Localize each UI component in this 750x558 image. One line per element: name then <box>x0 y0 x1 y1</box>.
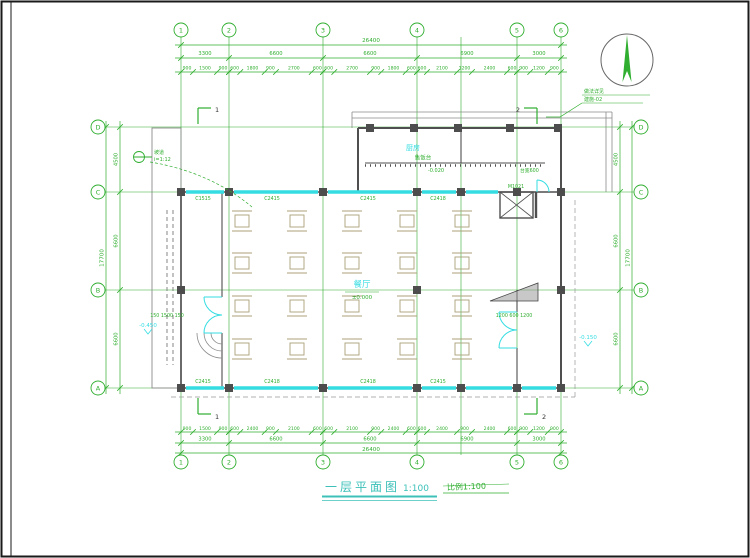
dimension-text: 2700 <box>288 66 300 72</box>
dimension-text: 900 <box>219 66 228 72</box>
room-label-dining: 餐厅 <box>353 280 371 290</box>
elevation-text: -0.450 <box>139 323 157 329</box>
dimension-text: 900 <box>371 66 380 72</box>
dimension-text: 2100 <box>436 66 448 72</box>
grid-bubble-label: 5 <box>515 26 519 34</box>
window-tag: C2415 <box>195 379 211 385</box>
room-label-kitchen: 厨房 <box>406 143 420 152</box>
section-number: 1 <box>215 413 219 421</box>
dimension-text: 17700 <box>100 249 106 267</box>
dimension-text: 6600 <box>614 234 620 247</box>
dimension-text: 6600 <box>269 437 282 443</box>
dimension-text: 4500 <box>114 153 120 166</box>
dimension-text: 1200 <box>459 66 471 72</box>
dimension-text: 1200 <box>533 426 545 432</box>
dimension-text: 600 <box>508 426 517 432</box>
grid-bubble-label: 1 <box>179 26 183 34</box>
dimension-text: 900 <box>219 426 228 432</box>
column <box>557 188 565 196</box>
grid-bubble-label: B <box>639 286 643 294</box>
dimension-text: 2400 <box>388 426 400 432</box>
window-tag: C2415 <box>264 196 280 202</box>
note-text: 建施-02 <box>584 96 602 103</box>
grid-bubble-label: 4 <box>415 26 419 34</box>
callout-text: 坡道 <box>154 149 164 156</box>
column <box>225 384 233 392</box>
column <box>177 286 185 294</box>
dimension-text: 6600 <box>363 437 376 443</box>
column <box>413 384 421 392</box>
dimension-text: 900 <box>183 426 192 432</box>
dimension-text: 900 <box>550 66 559 72</box>
column <box>413 188 421 196</box>
grid-bubble-label: 2 <box>227 26 231 34</box>
grid-bubble-label: 3 <box>321 458 325 466</box>
dimension-text: 600 <box>324 66 333 72</box>
dimension-text: 2400 <box>436 426 448 432</box>
dimension-text: 2100 <box>346 426 358 432</box>
dimension-text: 17700 <box>626 249 632 267</box>
dimension-text: 3300 <box>198 51 211 57</box>
elevation-dining: ±0.000 <box>352 295 373 301</box>
window-tag: C2418 <box>264 379 280 385</box>
dimension-text: 3000 <box>532 51 545 57</box>
column <box>177 188 185 196</box>
dimension-text: 6900 <box>460 437 473 443</box>
dimension-text: 2100 <box>288 426 300 432</box>
dimension-text: 600 <box>407 66 416 72</box>
dimension-text: 2400 <box>484 66 496 72</box>
door-tag: M1021 <box>508 184 524 190</box>
dimension-text: 4500 <box>614 153 620 166</box>
grid-bubble-label: C <box>639 188 644 196</box>
dimension-text: 900 <box>266 66 275 72</box>
grid-bubble-label: A <box>96 384 101 392</box>
dimension-text: 3300 <box>198 437 211 443</box>
counter-note: 台宽600 <box>520 167 539 174</box>
dimension-text: 1800 <box>388 66 400 72</box>
dimension-text: 26400 <box>362 38 380 44</box>
column <box>513 384 521 392</box>
check-stamp: 比例1:100 <box>447 481 486 492</box>
window-tag: C2415 <box>430 379 446 385</box>
dimension-text: 900 <box>371 426 380 432</box>
dimension-text: 1500 <box>199 66 211 72</box>
section-number: 2 <box>516 106 520 114</box>
dimension-text: 900 <box>266 426 275 432</box>
dimension-text: 3000 <box>532 437 545 443</box>
dimension-text: 2700 <box>346 66 358 72</box>
dimension-text: 26400 <box>362 447 380 453</box>
dimension-text: 6600 <box>114 332 120 345</box>
dimension-text: 600 <box>418 66 427 72</box>
dimension-text: 6600 <box>614 332 620 345</box>
dimension-text: 600 <box>230 426 239 432</box>
elevation-kitchen: -0.020 <box>428 168 444 174</box>
window-tag: C2418 <box>430 196 446 202</box>
dimension-text: 2400 <box>247 426 259 432</box>
grid-bubble-label: D <box>95 123 100 131</box>
dimension-text: 900 <box>550 426 559 432</box>
dimension-text: 1800 <box>247 66 259 72</box>
window-tag: C1515 <box>195 196 211 202</box>
drawing-scale: 1:100 <box>403 484 429 494</box>
grid-bubble-label: 6 <box>559 26 563 34</box>
section-number: 2 <box>542 413 546 421</box>
dimension-text: 600 <box>418 426 427 432</box>
section-number: 1 <box>215 106 219 114</box>
grid-bubble-label: C <box>96 188 101 196</box>
door-dims: 1200 600 1200 <box>496 313 533 319</box>
grid-bubble-label: 4 <box>415 458 419 466</box>
column <box>319 188 327 196</box>
dimension-text: 6900 <box>460 51 473 57</box>
dimension-text: 1500 <box>199 426 211 432</box>
ramp-dims: 150 1500 150 <box>150 313 184 319</box>
column <box>457 188 465 196</box>
page-title: 一层平面图 <box>325 480 400 494</box>
elevation-text: -0.150 <box>579 335 597 341</box>
column <box>557 384 565 392</box>
floor-plan-canvas: 2640026400330066006600690030003300660066… <box>0 0 750 558</box>
grid-bubble-label: A <box>639 384 644 392</box>
dimension-text: 6600 <box>269 51 282 57</box>
dimension-text: 2400 <box>484 426 496 432</box>
counter-label: 售饭台 <box>415 154 432 162</box>
grid-bubble-label: 1 <box>179 458 183 466</box>
grid-bubble-label: 5 <box>515 458 519 466</box>
dimension-text: 600 <box>313 66 322 72</box>
column <box>410 124 418 132</box>
column <box>506 124 514 132</box>
grid-bubble-label: 6 <box>559 458 563 466</box>
dimension-text: 6600 <box>114 234 120 247</box>
dimension-text: 600 <box>324 426 333 432</box>
dimension-text: 600 <box>407 426 416 432</box>
grid-bubble-label: B <box>96 286 100 294</box>
dimension-text: 900 <box>183 66 192 72</box>
column <box>457 384 465 392</box>
column <box>413 286 421 294</box>
window-tag: C2418 <box>360 379 376 385</box>
grid-bubble-label: D <box>638 123 643 131</box>
dimension-text: 1200 <box>533 66 545 72</box>
column <box>319 384 327 392</box>
dimension-text: 6600 <box>363 51 376 57</box>
callout-text: i=1:12 <box>154 157 171 163</box>
column <box>557 286 565 294</box>
note-text: 做法详见 <box>584 88 604 95</box>
dimension-text: 900 <box>519 426 528 432</box>
column <box>366 124 374 132</box>
column <box>454 124 462 132</box>
dimension-text: 900 <box>460 426 469 432</box>
dimension-text: 600 <box>313 426 322 432</box>
grid-bubble-label: 2 <box>227 458 231 466</box>
column <box>554 124 562 132</box>
dimension-text: 600 <box>508 66 517 72</box>
dimension-text: 900 <box>519 66 528 72</box>
grid-bubble-label: 3 <box>321 26 325 34</box>
column <box>177 384 185 392</box>
dimension-text: 600 <box>230 66 239 72</box>
window-tag: C2415 <box>360 196 376 202</box>
